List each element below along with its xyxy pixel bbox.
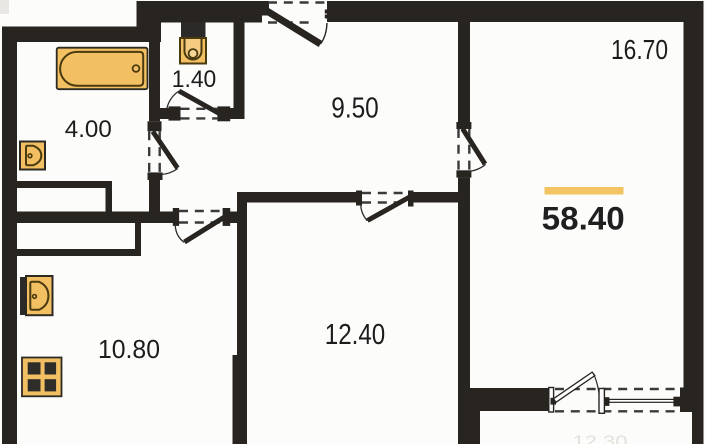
svg-text:16.70: 16.70 xyxy=(611,34,668,65)
svg-text:12.40: 12.40 xyxy=(325,319,386,351)
svg-text:1.40: 1.40 xyxy=(172,66,217,93)
svg-text:4.00: 4.00 xyxy=(65,116,112,143)
svg-text:58.40: 58.40 xyxy=(542,201,625,237)
svg-text:12.30: 12.30 xyxy=(573,433,628,444)
svg-text:9.50: 9.50 xyxy=(331,92,379,124)
svg-text:10.80: 10.80 xyxy=(98,334,160,364)
